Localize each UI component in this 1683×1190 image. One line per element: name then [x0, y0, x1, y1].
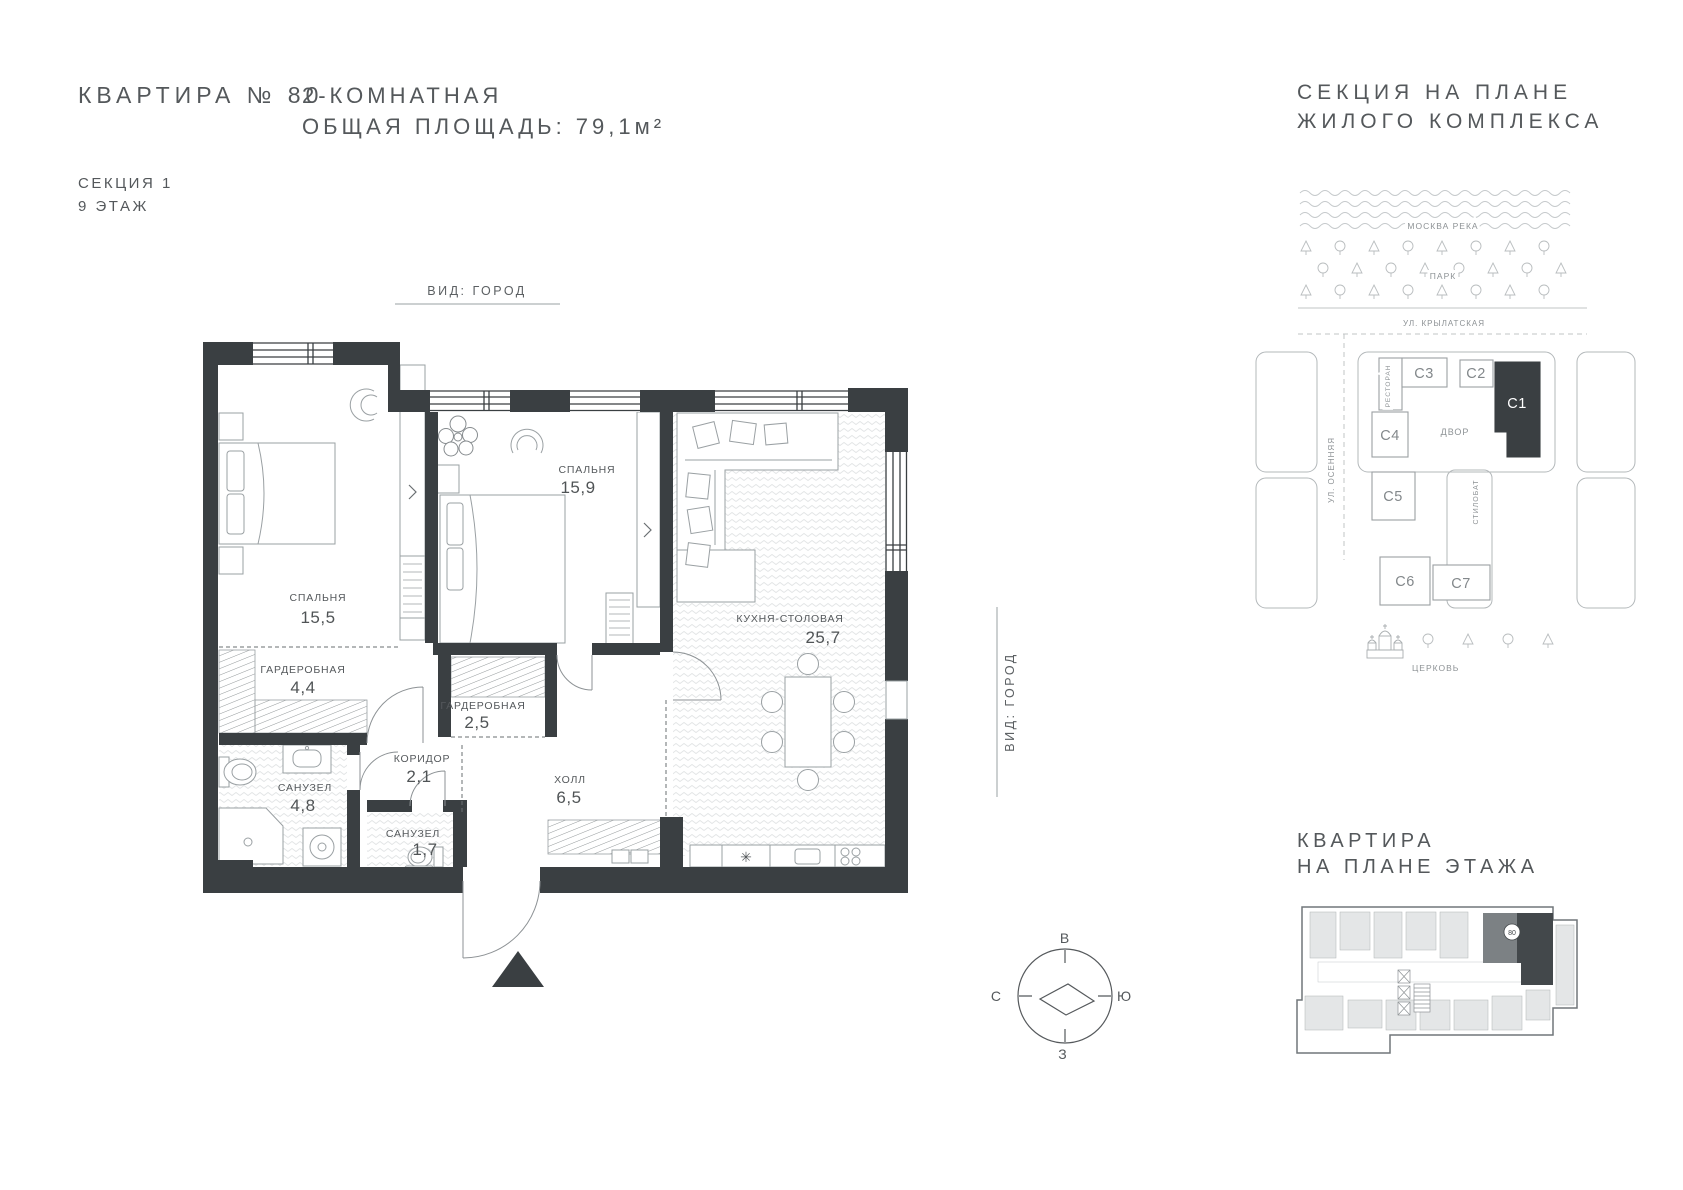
stylobate-label: СТИЛОБАТ [1473, 479, 1480, 524]
section-c4: С4 [1380, 428, 1400, 444]
window [885, 452, 908, 571]
window [715, 390, 848, 412]
section-label: СЕКЦИЯ 1 [78, 172, 173, 195]
room-name: САНУЗЕЛ [386, 828, 440, 840]
room-area: 15,9 [560, 478, 595, 497]
balcony-door [886, 681, 907, 719]
room-name: СПАЛЬНЯ [290, 592, 347, 604]
thumb-title-1: КВАРТИРА [1297, 828, 1539, 854]
armchair-icon [511, 429, 543, 453]
compass: В С Ю З [991, 930, 1132, 1060]
floor-label: 9 ЭТАЖ [78, 195, 173, 218]
view-label-right: ВИД: ГОРОД [1003, 652, 1017, 752]
church-label: ЦЕРКОВЬ [1412, 663, 1459, 673]
room-area: 2,1 [406, 767, 431, 786]
room-name: ГАРДЕРОБНАЯ [440, 700, 525, 712]
site-plan-title-2: ЖИЛОГО КОМПЛЕКСА [1297, 107, 1603, 136]
room-name: ХОЛЛ [554, 774, 586, 786]
room-area: 6,5 [556, 788, 581, 807]
door-arc [557, 655, 592, 690]
bedroom2-furniture [437, 412, 660, 645]
section-c2: С2 [1466, 366, 1486, 382]
church-icon [1367, 624, 1403, 658]
section-c7: С7 [1451, 576, 1471, 592]
restaurant-label: РЕСТОРАН [1385, 365, 1392, 408]
apartment-badge-number: 80 [1508, 930, 1516, 937]
fridge-icon: ✳ [740, 849, 752, 865]
total-area: ОБЩАЯ ПЛОЩАДЬ: 79,1м² [302, 111, 665, 142]
room-name: КОРИДОР [394, 753, 451, 765]
armchair-icon [350, 389, 374, 421]
window [570, 390, 640, 412]
apartment-type: 2-КОМНАТНАЯ [302, 80, 665, 111]
sink-icon [795, 849, 820, 864]
compass-north: С [991, 988, 1002, 1004]
bottom-trees [1423, 634, 1553, 648]
church: ЦЕРКОВЬ [1367, 624, 1459, 673]
street-top-label: УЛ. КРЫЛАТСКАЯ [1403, 319, 1485, 328]
thumb-title-2: НА ПЛАНЕ ЭТАЖА [1297, 854, 1539, 880]
room-area: 1,7 [412, 840, 437, 859]
courtyard-label: ДВОР [1441, 427, 1470, 437]
window [430, 390, 510, 412]
section-c6: С6 [1395, 574, 1415, 590]
dining-table-icon [785, 677, 831, 767]
compass-east: В [1060, 930, 1070, 946]
shower-icon [219, 808, 283, 864]
room-area: 4,4 [290, 678, 315, 697]
thumb-corridor [1318, 962, 1533, 982]
compass-west: З [1058, 1046, 1067, 1060]
doors [360, 652, 721, 958]
section-c3: С3 [1414, 366, 1434, 382]
room-area: 4,8 [290, 796, 315, 815]
plant-icon [439, 416, 478, 456]
floor-plan: ✳ [185, 250, 1160, 1060]
entrance-arrow-icon [492, 951, 544, 987]
river-label: МОСКВА РЕКА [1407, 221, 1478, 231]
site-plan: МОСКВА РЕКА ПАРК УЛ. КРЫЛАТСКАЯ УЛ. ОСЕН… [1190, 160, 1683, 700]
street-left-label: УЛ. ОСЕННЯЯ [1327, 437, 1336, 503]
view-label-top: ВИД: ГОРОД [427, 284, 527, 298]
door-arc [360, 752, 398, 790]
floor-thumbnail: 80 [1290, 895, 1590, 1070]
park-label: ПАРК [1430, 271, 1456, 281]
section-c5: С5 [1383, 489, 1403, 505]
compass-south: Ю [1117, 988, 1132, 1004]
entrance-door [463, 881, 540, 958]
window [253, 342, 333, 365]
section-c1: С1 [1507, 396, 1527, 412]
room-area: 25,7 [805, 628, 840, 647]
room-name: КУХНЯ-СТОЛОВАЯ [736, 613, 843, 625]
site-plan-title-1: СЕКЦИЯ НА ПЛАНЕ [1297, 78, 1603, 107]
room-area: 2,5 [464, 713, 489, 732]
room-name: ГАРДЕРОБНАЯ [260, 664, 345, 676]
room-area: 15,5 [300, 608, 335, 627]
door-arc [367, 687, 423, 743]
apartment-title: КВАРТИРА № 80 [78, 82, 323, 109]
park-trees [1301, 241, 1566, 299]
room-name: САНУЗЕЛ [278, 782, 332, 794]
room-name: СПАЛЬНЯ [559, 464, 616, 476]
